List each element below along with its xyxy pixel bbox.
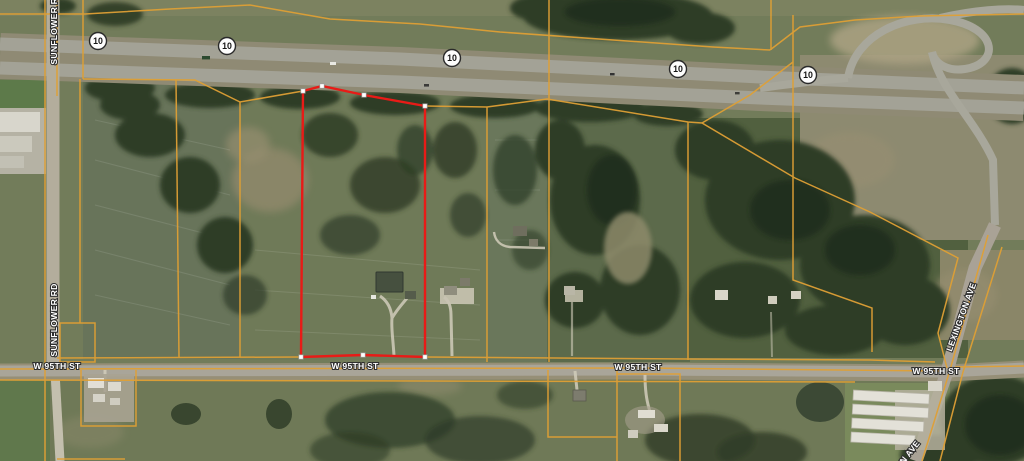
road-label-w-95th-st: W 95TH ST — [331, 361, 379, 371]
route-number: 10 — [222, 41, 232, 51]
route-10-shield: 10 — [219, 38, 236, 55]
route-10-shield: 10 — [444, 50, 461, 67]
route-number: 10 — [447, 53, 457, 63]
map-canvas: 10 10 10 10 10 SUNFLOWER RD SUNFLOWER RD… — [0, 0, 1024, 461]
route-number: 10 — [673, 64, 683, 74]
route-10-shield: 10 — [670, 61, 687, 78]
road-label-sunflower-rd: SUNFLOWER RD — [49, 0, 59, 65]
route-10-shield: 10 — [90, 33, 107, 50]
route-10-shield: 10 — [800, 67, 817, 84]
road-label-w-95th-st: W 95TH ST — [614, 362, 662, 372]
route-number: 10 — [93, 36, 103, 46]
road-label-sunflower-rd: SUNFLOWER RD — [49, 283, 59, 356]
aerial-parcel-map: 10 10 10 10 10 SUNFLOWER RD SUNFLOWER RD… — [0, 0, 1024, 461]
road-label-w-95th-st: W 95TH ST — [33, 361, 81, 371]
route-number: 10 — [803, 70, 813, 80]
road-label-w-95th-st: W 95TH ST — [912, 366, 960, 376]
